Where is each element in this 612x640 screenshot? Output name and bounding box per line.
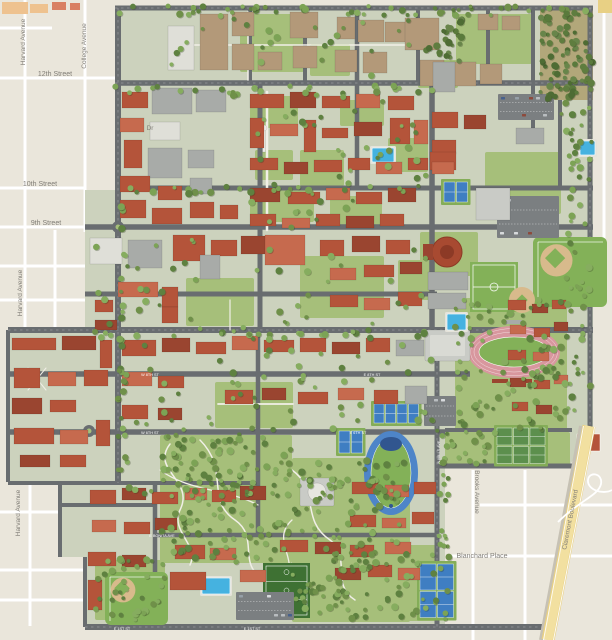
building[interactable] xyxy=(50,400,76,412)
offcampus-building xyxy=(70,3,80,10)
building[interactable] xyxy=(502,16,520,30)
building[interactable] xyxy=(162,338,190,352)
street-label: Harvard Avenue xyxy=(15,489,22,536)
lawn xyxy=(186,278,254,326)
building[interactable] xyxy=(480,64,502,84)
building[interactable] xyxy=(464,115,486,129)
building[interactable] xyxy=(432,112,458,128)
building[interactable] xyxy=(196,342,226,354)
building[interactable] xyxy=(508,300,526,310)
building[interactable] xyxy=(196,90,226,112)
building[interactable] xyxy=(122,92,148,108)
street-label: College Avenue xyxy=(81,23,88,69)
building[interactable] xyxy=(152,88,192,114)
building[interactable] xyxy=(516,128,544,144)
building[interactable] xyxy=(388,96,414,110)
building[interactable] xyxy=(400,262,422,274)
building[interactable] xyxy=(240,570,266,582)
building[interactable] xyxy=(190,202,214,218)
building[interactable] xyxy=(90,238,122,264)
building[interactable] xyxy=(300,338,326,352)
street-label: W 8TH ST xyxy=(141,373,159,377)
building[interactable] xyxy=(354,122,382,136)
street-label: 9th Street xyxy=(31,220,61,227)
building[interactable] xyxy=(200,255,220,279)
building[interactable] xyxy=(350,515,376,527)
building[interactable] xyxy=(88,580,102,610)
building[interactable] xyxy=(476,188,510,220)
street-label: Harvard Avenue xyxy=(17,269,24,316)
street-label: 10th Street xyxy=(23,181,57,188)
building[interactable] xyxy=(90,490,116,504)
offcampus-building xyxy=(2,2,28,14)
building[interactable] xyxy=(356,192,382,204)
building[interactable] xyxy=(48,372,76,386)
building[interactable] xyxy=(288,192,320,204)
parking-lot xyxy=(424,396,456,426)
building[interactable] xyxy=(92,520,116,532)
building[interactable] xyxy=(478,14,498,30)
street-label: E 8TH ST xyxy=(364,373,381,377)
building[interactable] xyxy=(428,293,466,309)
building[interactable] xyxy=(338,388,364,400)
building[interactable] xyxy=(150,122,180,140)
building[interactable] xyxy=(386,240,410,254)
building[interactable] xyxy=(14,428,54,444)
building[interactable] xyxy=(100,340,112,368)
building[interactable] xyxy=(60,455,86,467)
building[interactable] xyxy=(120,118,144,132)
building[interactable] xyxy=(162,307,178,323)
building[interactable] xyxy=(20,455,50,467)
street-label: E BONITA AVE xyxy=(149,534,175,538)
offcampus-building xyxy=(52,2,66,10)
building[interactable] xyxy=(262,388,286,400)
building[interactable] xyxy=(316,214,340,226)
building[interactable] xyxy=(270,124,298,136)
parking-lot xyxy=(236,592,294,620)
baseball-field xyxy=(533,237,607,307)
building[interactable] xyxy=(88,552,116,566)
building[interactable] xyxy=(380,214,404,226)
building[interactable] xyxy=(536,405,552,414)
building[interactable] xyxy=(382,518,406,528)
building[interactable] xyxy=(364,298,390,310)
building[interactable] xyxy=(62,336,96,350)
building[interactable] xyxy=(200,14,228,70)
building[interactable] xyxy=(232,12,254,36)
street-label: E 1ST ST xyxy=(244,627,261,631)
street-label: Brooks Avenue xyxy=(473,470,480,514)
building[interactable] xyxy=(232,44,254,70)
building[interactable] xyxy=(290,12,318,38)
map-canvas[interactable]: Harvard AvenueCollege Avenue12th StreetD… xyxy=(0,0,612,640)
building[interactable] xyxy=(298,392,328,404)
street-label: E 1ST ST xyxy=(114,627,131,631)
street-label: Blanchard Place xyxy=(457,553,508,560)
building[interactable] xyxy=(352,236,380,252)
street-label: Dr xyxy=(147,125,155,132)
building[interactable] xyxy=(433,62,455,92)
building[interactable] xyxy=(282,218,310,228)
campus-map: Harvard AvenueCollege Avenue12th StreetD… xyxy=(0,0,612,640)
building[interactable] xyxy=(84,370,108,386)
building[interactable] xyxy=(414,482,436,494)
building[interactable] xyxy=(348,158,370,170)
building[interactable] xyxy=(284,162,308,174)
building[interactable] xyxy=(332,342,360,354)
building[interactable] xyxy=(554,322,568,331)
building[interactable] xyxy=(170,572,206,590)
building[interactable] xyxy=(152,208,182,224)
building[interactable] xyxy=(330,295,358,307)
building[interactable] xyxy=(188,150,214,168)
street-label: Harvard Avenue xyxy=(20,18,27,65)
building[interactable] xyxy=(122,340,156,356)
building[interactable] xyxy=(14,368,40,388)
building[interactable] xyxy=(405,386,427,404)
building[interactable] xyxy=(120,176,150,192)
building[interactable] xyxy=(322,128,348,138)
building[interactable] xyxy=(346,216,374,228)
building[interactable] xyxy=(60,430,88,444)
street-label: E 6TH ST xyxy=(350,431,367,435)
building[interactable] xyxy=(95,320,117,330)
building[interactable] xyxy=(12,398,42,414)
building[interactable] xyxy=(364,265,394,277)
building[interactable] xyxy=(330,268,356,280)
building[interactable] xyxy=(124,140,142,168)
building[interactable] xyxy=(432,162,454,174)
offcampus-building xyxy=(30,4,48,13)
street-label: W 6TH ST xyxy=(141,431,159,435)
building[interactable] xyxy=(158,186,182,200)
building[interactable] xyxy=(374,390,398,404)
street-label: N MILLS AVE xyxy=(437,440,441,463)
building[interactable] xyxy=(96,420,110,446)
building[interactable] xyxy=(396,340,424,356)
building[interactable] xyxy=(293,46,317,68)
street-label: 12th Street xyxy=(38,71,72,78)
building[interactable] xyxy=(211,240,237,256)
building[interactable] xyxy=(428,272,468,290)
building[interactable] xyxy=(124,522,150,534)
building[interactable] xyxy=(412,512,434,524)
building[interactable] xyxy=(250,94,284,108)
offcampus-building xyxy=(598,0,612,13)
building[interactable] xyxy=(148,148,182,178)
building[interactable] xyxy=(335,50,357,72)
building[interactable] xyxy=(220,205,238,219)
building[interactable] xyxy=(12,338,56,350)
building[interactable] xyxy=(363,52,387,73)
building[interactable] xyxy=(122,405,148,419)
building[interactable] xyxy=(314,160,342,172)
